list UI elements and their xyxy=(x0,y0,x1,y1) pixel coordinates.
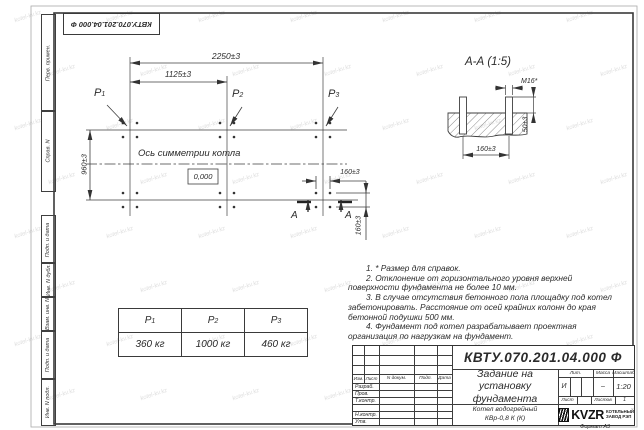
p-sub: 2 xyxy=(239,92,243,99)
point-label-p2: P2 xyxy=(232,88,243,100)
margin-box-inv-dubl: Инв. N дубл. xyxy=(41,262,56,298)
margin-box-podp-data-1: Подп. и дата xyxy=(41,215,56,264)
margin-box-perv-primen: Перв. примен. xyxy=(41,14,56,112)
margin-label: Справ. N xyxy=(46,139,52,162)
col-data: Дата xyxy=(437,374,452,383)
scale-value: 1:20 xyxy=(613,377,634,396)
row-prov: Пров. xyxy=(355,391,369,397)
doc-number: КВТУ.070.201.04.000 Ф xyxy=(452,346,634,369)
title-block: КВТУ.070.201.04.000 Ф Изм. Лист N докум.… xyxy=(352,345,635,426)
margin-box-inv-podl: Инв. N подл. xyxy=(41,378,56,426)
stamp-doc-number: КВТУ.070.201.04.000 Ф xyxy=(71,20,152,29)
section-letter-right: А xyxy=(345,210,352,221)
document-title: Задание на установку фундамента xyxy=(452,369,558,404)
margin-box-vzam-inv: Взам. инв. N xyxy=(41,296,56,332)
load-table: P1 P2 P3 360 кг 1000 кг 460 кг xyxy=(118,308,308,357)
load-header-p3: P3 xyxy=(245,309,308,333)
dim-50: 50±3 xyxy=(523,107,530,143)
col-izm: Изм. xyxy=(353,374,364,383)
load-header-p1: P1 xyxy=(119,309,182,333)
dim-2250: 2250±3 xyxy=(196,51,256,61)
lit-value: И xyxy=(558,377,570,396)
row-tkontr: Т.контр. xyxy=(355,398,376,404)
dim-160-vertical: 160±3 xyxy=(356,206,363,246)
p-sub: 1 xyxy=(101,91,105,98)
margin-label: Подп. и дата xyxy=(46,222,52,256)
col-ndokum: N докум. xyxy=(379,374,414,383)
sheet-label: Лист xyxy=(558,396,577,404)
load-value-p3: 460 кг xyxy=(245,333,308,357)
lit-label: Лит. xyxy=(558,369,593,377)
p-sub: 1 xyxy=(151,318,155,325)
kvzr-caption: КОТЕЛЬНЫЙ ЗАВОД РЭП xyxy=(606,410,634,420)
margin-box-podp-data-2: Подп. и дата xyxy=(41,330,56,380)
col-podp: Подп. xyxy=(414,374,437,383)
product-line2: КВр-0,8 К (К) xyxy=(485,415,525,423)
margin-label: Инв. N дубл. xyxy=(46,264,52,296)
point-label-p3: P3 xyxy=(328,88,339,100)
margin-label: Взам. инв. N xyxy=(46,298,52,330)
symmetry-axis-caption: Ось симметрии котла xyxy=(138,148,240,159)
sheets-label: Листов xyxy=(591,396,615,404)
level-mark: 0,000 xyxy=(188,170,218,183)
load-table-value-row: 360 кг 1000 кг 460 кг xyxy=(119,333,308,357)
kvzr-coil-icon xyxy=(558,408,569,422)
kvzr-caption-line2: ЗАВОД РЭП xyxy=(606,415,634,420)
section-cut-marks xyxy=(297,200,352,212)
load-value-p1: 360 кг xyxy=(119,333,182,357)
section-letter-left: А xyxy=(291,210,298,221)
product-name: Котел водогрейный КВр-0,8 К (К) xyxy=(452,404,558,425)
p-sub: 3 xyxy=(335,92,339,99)
dim-160-section: 160±3 xyxy=(464,146,508,153)
row-razrab: Разраб. xyxy=(355,384,374,390)
point-label-p1: P1 xyxy=(94,87,105,99)
scale-label: Масштаб xyxy=(613,369,634,377)
dim-160-horizontal: 160±3 xyxy=(328,169,372,176)
mass-label: Масса xyxy=(593,369,613,377)
top-stamp: КВТУ.070.201.04.000 Ф xyxy=(63,13,160,35)
col-list: Лист xyxy=(364,374,379,383)
note-3: 3. В случае отсутствия бетонного пола пл… xyxy=(348,293,620,322)
sheets-value: 1 xyxy=(615,396,634,404)
bolt-thread-label: M16* xyxy=(521,78,537,85)
p-sub: 2 xyxy=(214,318,218,325)
margin-label: Инв. N подл. xyxy=(46,386,52,418)
p-sub: 3 xyxy=(277,318,281,325)
load-header-p2: P2 xyxy=(182,309,245,333)
margin-box-sprav-n: Справ. N xyxy=(41,110,56,192)
row-nkontr: Н.контр. xyxy=(355,412,377,418)
company-logo: KVZR КОТЕЛЬНЫЙ ЗАВОД РЭП xyxy=(558,404,634,425)
dim-1125: 1125±3 xyxy=(150,70,206,79)
drawing-sheet: kotel-kv.kzkotel-kv.kzkotel-kv.kzkotel-k… xyxy=(0,0,644,430)
mass-value: – xyxy=(593,377,613,396)
note-2: 2. Отклонение от горизонтального уровня … xyxy=(348,274,620,293)
format-note: Формат А3 xyxy=(580,424,610,430)
section-title: А-А (1:5) xyxy=(455,56,521,68)
margin-label: Перв. примен. xyxy=(46,45,52,82)
anchor-bolt-right xyxy=(506,97,513,134)
notes-block: 1. * Размер для справок. 2. Отклонение о… xyxy=(348,264,620,342)
anchor-bolt-points xyxy=(122,122,332,209)
load-table-header-row: P1 P2 P3 xyxy=(119,309,308,333)
anchor-bolt-left xyxy=(460,97,467,134)
note-4: 4. Фундамент под котел разрабатывает про… xyxy=(348,322,620,341)
load-value-p2: 1000 кг xyxy=(182,333,245,357)
dim-960: 960±3 xyxy=(80,147,89,183)
kvzr-logo-text: KVZR xyxy=(571,408,604,422)
product-line1: Котел водогрейный xyxy=(473,406,538,414)
row-utv: Утв. xyxy=(355,419,367,425)
margin-label: Подп. и дата xyxy=(46,338,52,372)
